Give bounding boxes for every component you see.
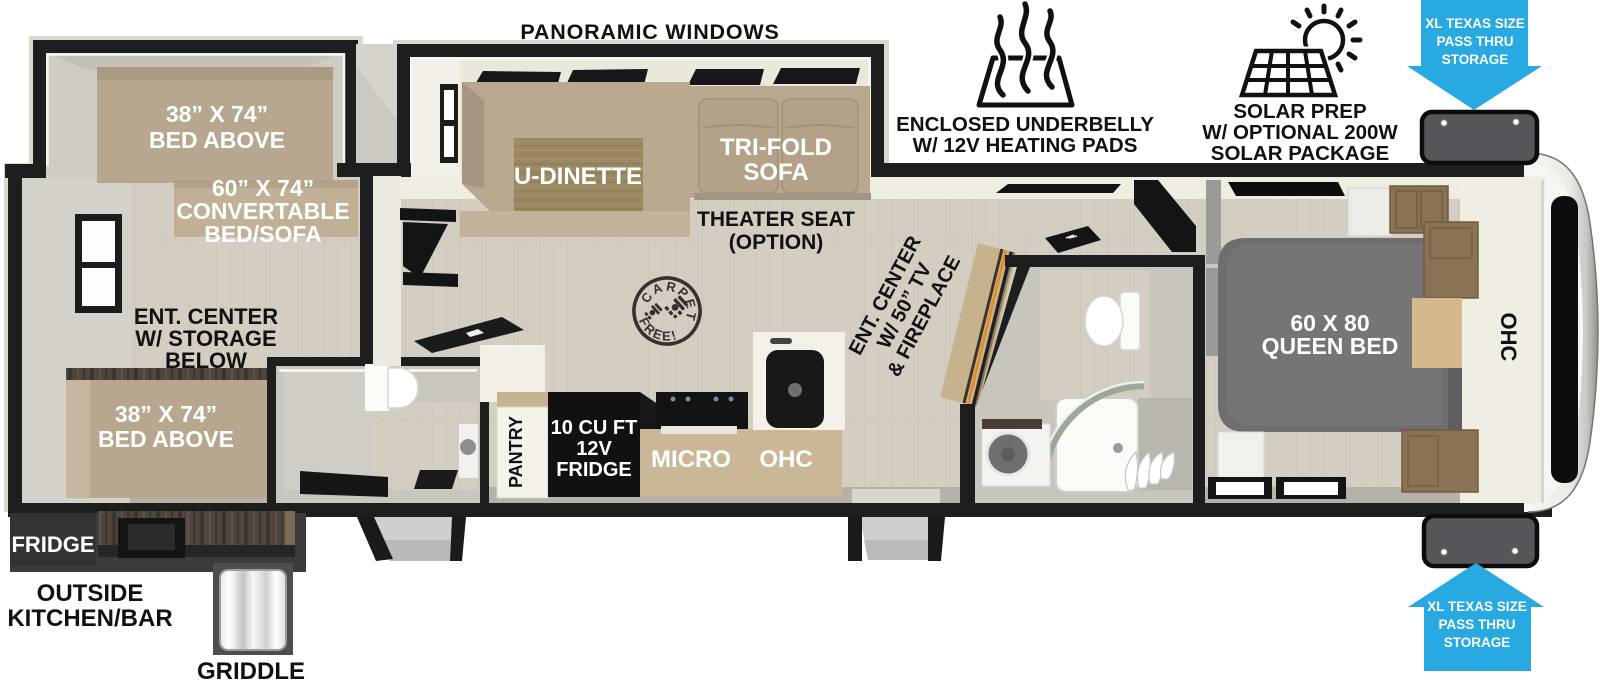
svg-text:XL TEXAS SIZE: XL TEXAS SIZE [1427, 599, 1527, 614]
svg-text:GRIDDLE: GRIDDLE [197, 658, 305, 685]
svg-text:QUEEN BED: QUEEN BED [1262, 333, 1399, 359]
svg-text:OHC: OHC [759, 446, 812, 473]
svg-text:STORAGE: STORAGE [1442, 52, 1509, 67]
svg-text:THEATER SEAT: THEATER SEAT [697, 208, 855, 231]
svg-text:MICRO: MICRO [651, 446, 731, 473]
svg-text:FRIDGE: FRIDGE [556, 459, 632, 481]
svg-text:SOLAR PACKAGE: SOLAR PACKAGE [1211, 142, 1389, 165]
svg-text:FRIDGE: FRIDGE [11, 532, 94, 557]
svg-text:PASS THRU: PASS THRU [1438, 617, 1515, 632]
svg-text:PASS THRU: PASS THRU [1436, 34, 1513, 49]
svg-text:12V: 12V [576, 438, 612, 460]
svg-text:SOFA: SOFA [743, 159, 808, 186]
svg-text:(OPTION): (OPTION) [729, 231, 824, 254]
svg-text:38” X 74”: 38” X 74” [166, 101, 268, 127]
svg-text:BED/SOFA: BED/SOFA [204, 221, 322, 247]
svg-text:SOLAR PREP: SOLAR PREP [1233, 100, 1366, 123]
svg-text:10 CU FT: 10 CU FT [551, 417, 638, 439]
svg-text:PANTRY: PANTRY [506, 416, 526, 488]
svg-text:BED ABOVE: BED ABOVE [149, 127, 285, 153]
svg-text:38” X 74”: 38” X 74” [115, 401, 217, 427]
svg-text:OUTSIDE: OUTSIDE [37, 580, 144, 607]
svg-text:ENCLOSED UNDERBELLY: ENCLOSED UNDERBELLY [896, 113, 1154, 136]
svg-text:PANORAMIC WINDOWS: PANORAMIC WINDOWS [520, 20, 779, 44]
svg-text:KITCHEN/BAR: KITCHEN/BAR [7, 605, 172, 632]
svg-text:W/ 12V HEATING PADS: W/ 12V HEATING PADS [913, 134, 1138, 157]
svg-text:XL TEXAS SIZE: XL TEXAS SIZE [1425, 16, 1525, 31]
svg-text:W/ OPTIONAL 200W: W/ OPTIONAL 200W [1202, 121, 1398, 144]
svg-text:STORAGE: STORAGE [1444, 635, 1511, 650]
svg-text:BED ABOVE: BED ABOVE [98, 426, 234, 452]
svg-text:OHC: OHC [1496, 313, 1521, 362]
svg-text:TRI-FOLD: TRI-FOLD [720, 134, 832, 161]
svg-text:BELOW: BELOW [165, 348, 247, 373]
svg-text:U-DINETTE: U-DINETTE [514, 163, 642, 190]
